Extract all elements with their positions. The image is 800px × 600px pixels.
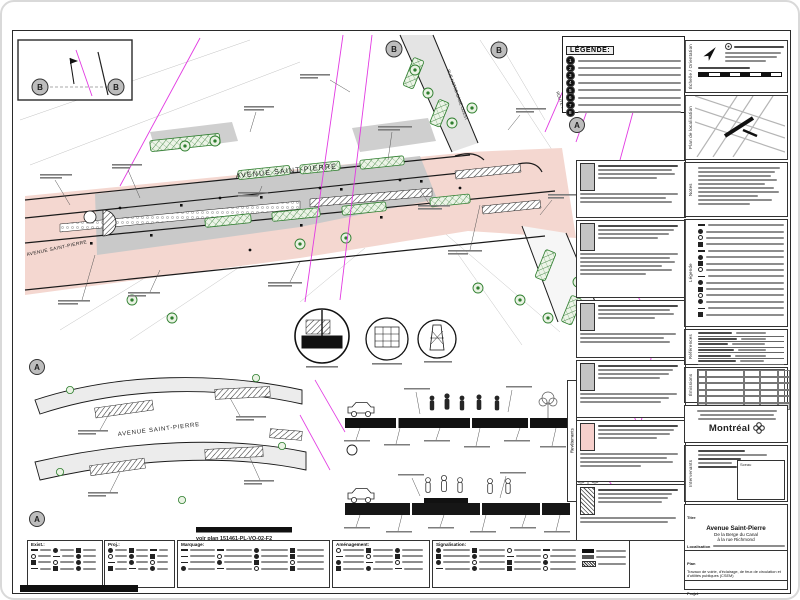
- svg-text:B: B: [496, 46, 502, 55]
- section-a-leaders: [344, 386, 566, 448]
- surface-panel: [576, 160, 686, 218]
- titre-label: Titre: [687, 515, 696, 520]
- panel-label: Émissions: [685, 368, 695, 402]
- svg-text:A: A: [34, 363, 40, 372]
- hatch-swatch: [580, 487, 595, 515]
- surface-panel: [576, 300, 686, 358]
- line-symbol: [698, 308, 705, 310]
- sheet-title: Avenue Saint-Pierre: [687, 525, 785, 532]
- people-silhouettes: [430, 393, 500, 410]
- detail-circle-3: [418, 320, 456, 363]
- key-map: [695, 96, 785, 157]
- panel-stakeholders: Intervenants Sceau: [684, 445, 788, 502]
- dot-symbol: [698, 255, 703, 260]
- people-outlines: [426, 475, 511, 493]
- svg-text:B: B: [391, 45, 397, 54]
- sheet-subtitle-2: à la rue Richmond: [687, 537, 785, 542]
- bottom-legend-signalisation: Signalisation:: [432, 540, 630, 588]
- seal-box: Sceau: [737, 460, 785, 500]
- svg-text:B: B: [37, 83, 43, 92]
- legend-title: LÉGENDE:: [566, 46, 614, 55]
- inset-plan: AVENUE SAINT-PIERRE A A voir plan 151461…: [30, 360, 346, 543]
- legend-item: 1: [566, 57, 681, 64]
- panel-label: Références: [685, 330, 695, 364]
- panel-location-map: Plan de localisation: [684, 95, 788, 160]
- city-rosette-icon: [725, 43, 732, 50]
- square-symbol: [698, 261, 703, 266]
- montreal-logo: Montréal: [690, 422, 784, 434]
- car-outline: [348, 489, 374, 503]
- svg-text:B: B: [113, 83, 119, 92]
- section-b-median: [424, 498, 468, 503]
- legend-box: LÉGENDE: 1 2 3 4 5 6 7 8: [562, 36, 685, 113]
- bottom-legend-marking: Marquage:: [177, 540, 330, 588]
- screenshot-page: { "top_legend": { "title": "LÉGENDE:", "…: [0, 0, 800, 600]
- tree-sketch: [539, 392, 557, 422]
- montreal-rosette-icon: [753, 422, 765, 434]
- svg-text:A: A: [34, 515, 40, 524]
- surface-panel: [576, 420, 686, 482]
- legend-item: 7: [566, 101, 681, 108]
- car-silhouette: [348, 403, 374, 417]
- legend-item: 8: [566, 109, 681, 116]
- square-symbol: [698, 242, 703, 247]
- gray-swatch: [580, 303, 595, 331]
- gray-swatch: [580, 363, 595, 391]
- panel-references: Références: [684, 329, 788, 365]
- section-a-marker: [347, 445, 357, 455]
- bottom-legend-existing: Exist.:: [27, 540, 103, 588]
- bottom-legend-amenagement: Aménagement:: [332, 540, 430, 588]
- circle-symbol: [698, 267, 703, 272]
- line-symbol: [698, 276, 705, 278]
- bottom-legend-proposed: Proj.:: [104, 540, 175, 588]
- bumpout-tree-pit: [84, 211, 96, 223]
- panel-emissions: Émissions: [684, 367, 788, 403]
- square-symbol: [698, 287, 703, 292]
- circle-symbol: [698, 293, 703, 298]
- section-key-box: B B: [18, 40, 132, 100]
- dot-symbol: [698, 280, 703, 285]
- circle-symbol: [698, 235, 703, 240]
- pink-swatch: [580, 423, 595, 451]
- line-symbol: [698, 224, 705, 226]
- legend-item: 4: [566, 79, 681, 86]
- panel-scale-orientation: Échelle / Orientation: [684, 40, 788, 93]
- title-block: Titre Avenue Saint-Pierre De la Berge du…: [684, 504, 788, 590]
- cross-section-b: [344, 464, 600, 533]
- dot-symbol: [698, 299, 703, 304]
- plan-description: Plan Travaux de voirie, d'éclairage, de …: [685, 550, 787, 580]
- graphic-scale-bar: [698, 72, 782, 77]
- panel-firm: Montréal: [684, 405, 788, 443]
- svg-text:A: A: [574, 121, 580, 130]
- legend-item: 5: [566, 87, 681, 94]
- gray-swatch: [580, 223, 595, 251]
- gray-swatch: [580, 163, 595, 191]
- surface-panel: [576, 220, 686, 298]
- north-arrow-icon: [698, 43, 722, 65]
- line-symbol: [698, 250, 705, 252]
- section-b-ground: [345, 503, 570, 515]
- panel-label: Échelle / Orientation: [685, 41, 695, 92]
- legend-item: 2: [566, 64, 681, 71]
- panel-label: Plan de localisation: [685, 96, 695, 159]
- gray-patch-2: [352, 118, 436, 152]
- localisation-label: Localisation: [687, 544, 710, 549]
- cross-section-a: [344, 386, 567, 455]
- legend-item: 6: [566, 94, 681, 101]
- panel-label: Légende: [685, 220, 695, 326]
- legend-item: 3: [566, 72, 681, 79]
- square-symbol: [698, 312, 703, 317]
- surface-panel: [576, 360, 686, 418]
- surface-panel: [576, 484, 686, 541]
- section-a-ground: [345, 418, 567, 428]
- panel-notes: Notes: [684, 162, 788, 217]
- swatch-sub-legend: [582, 547, 626, 572]
- surface-notes-column: Revêtements: [567, 160, 686, 541]
- dot-symbol: [698, 229, 703, 234]
- detail-circle-1: [295, 309, 349, 368]
- panel-label: Notes: [685, 163, 695, 216]
- montreal-wordmark: Montréal: [709, 423, 750, 434]
- panel-label: Intervenants: [685, 446, 695, 501]
- project-description: Projet Réaménagement géométrique, constr…: [685, 580, 787, 600]
- detail-circle-2: [366, 318, 408, 365]
- general-note-highlight: [20, 585, 138, 592]
- inset-avenue-label: AVENUE SAINT-PIERRE: [118, 422, 201, 438]
- detail-circles: [295, 309, 456, 368]
- panel-legend: Légende: [684, 219, 788, 327]
